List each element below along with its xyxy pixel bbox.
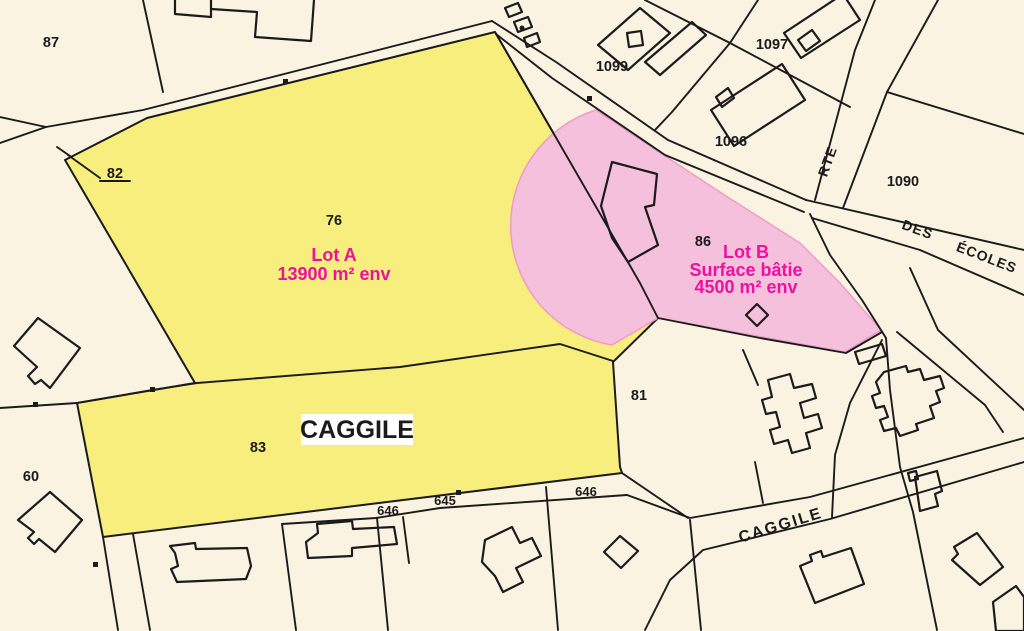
survey-tick	[33, 402, 38, 407]
survey-tick	[283, 79, 288, 84]
parcel-label-83: 83	[250, 440, 266, 456]
survey-tick	[456, 490, 461, 495]
survey-tick	[587, 96, 592, 101]
parcel-label-1090: 1090	[887, 174, 919, 190]
survey-tick	[93, 562, 98, 567]
survey-tick	[150, 387, 155, 392]
parcel-label-60: 60	[23, 469, 39, 485]
parcel-label-1096: 1096	[715, 134, 747, 150]
parcel-label-1099: 1099	[596, 59, 628, 75]
parcel-label-87: 87	[43, 35, 59, 51]
parcel-label-645: 645	[434, 493, 456, 508]
lot-a-area: 13900 m² env	[277, 264, 390, 284]
parcel-label-1097: 1097	[756, 37, 788, 53]
parcel-label-76: 76	[326, 213, 342, 229]
parcel-label-82: 82	[107, 166, 123, 182]
lot-a-title: Lot A	[311, 245, 356, 265]
survey-tick	[520, 26, 525, 31]
parcel-label-81: 81	[631, 388, 647, 404]
parcel-label-646b: 646	[575, 484, 597, 499]
cadastral-map: 87 82 76 1099 1097 1096 1090 86 60 83 81…	[0, 0, 1024, 631]
parcel-label-86: 86	[695, 234, 711, 250]
parcel-label-646: 646	[377, 503, 399, 518]
lot-b-area: 4500 m² env	[694, 277, 797, 297]
place-label-caggile: CAGGILE	[300, 416, 414, 444]
lot-b-title: Lot B	[723, 242, 769, 262]
